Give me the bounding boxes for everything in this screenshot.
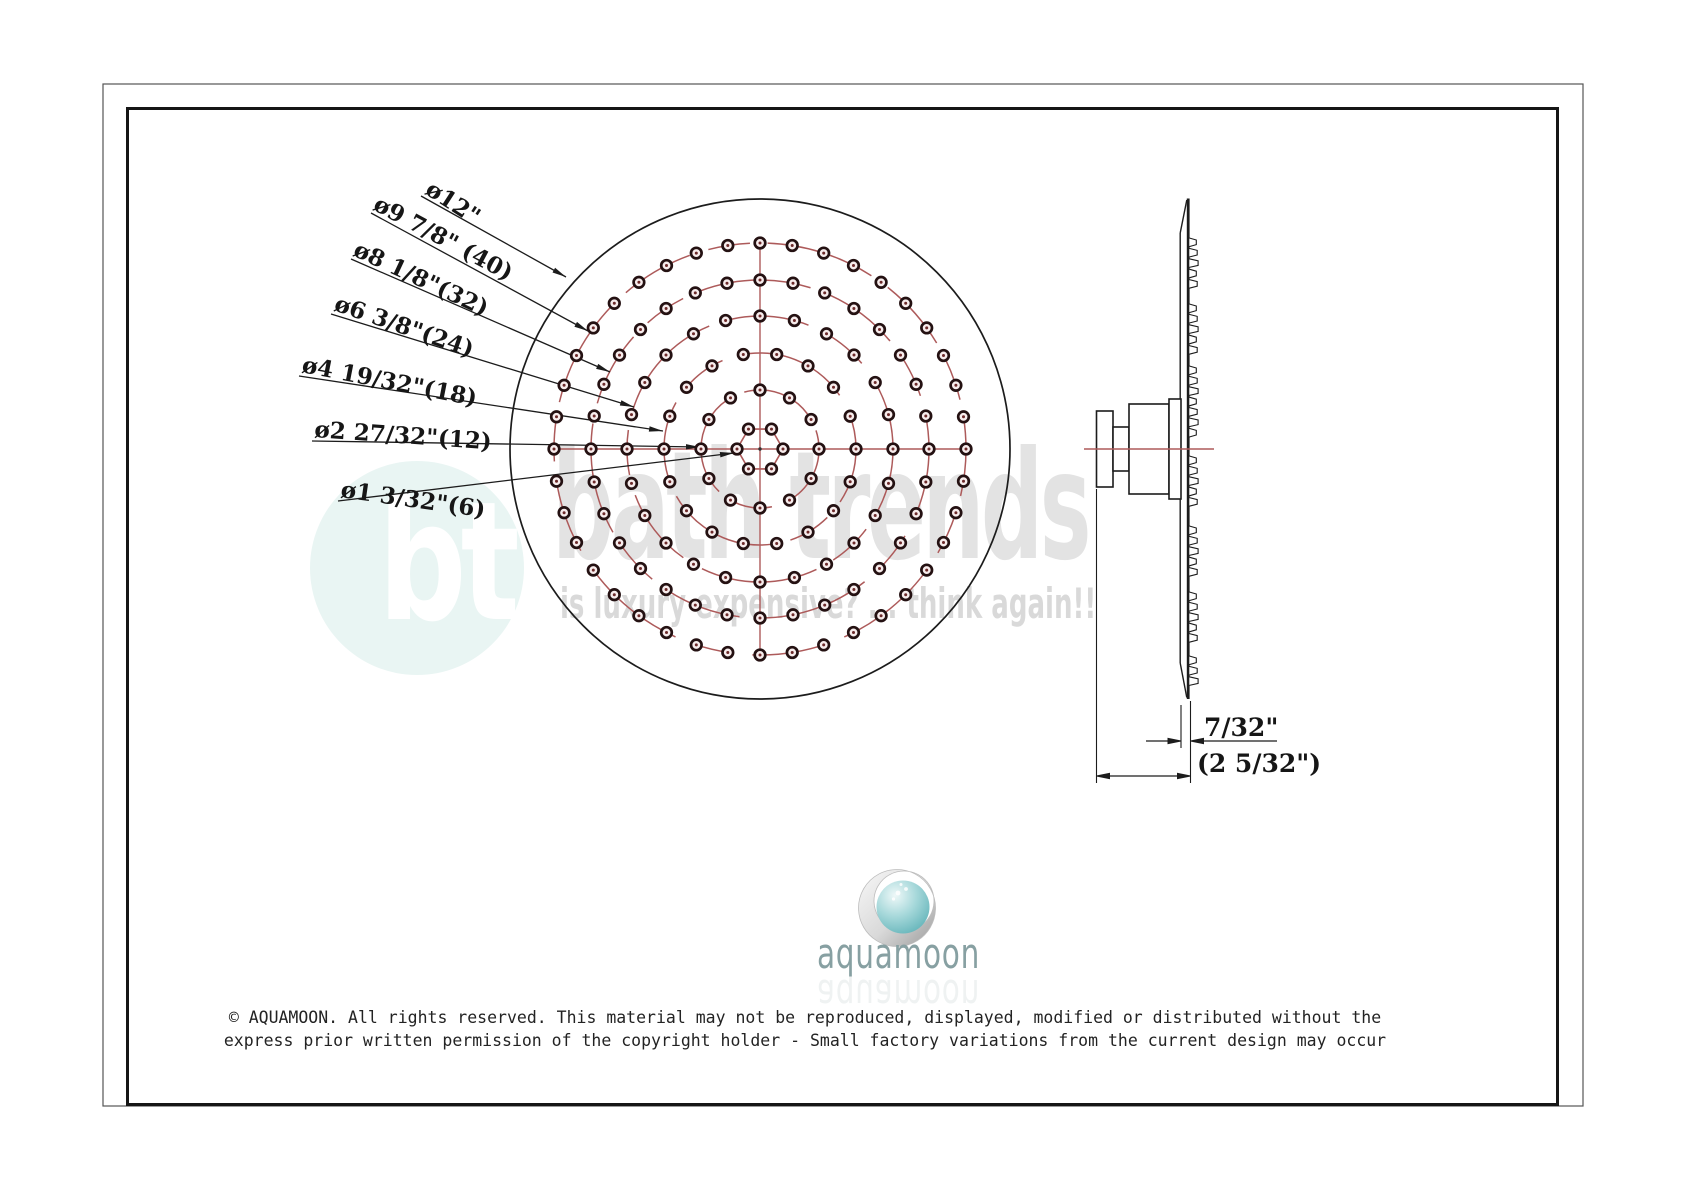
nozzle-center xyxy=(618,541,621,544)
extension-lines xyxy=(1097,489,1191,783)
nozzle-center xyxy=(825,563,828,566)
plate-top-chamfer xyxy=(1180,200,1187,233)
nozzle-center xyxy=(592,326,595,329)
nozzle-center xyxy=(726,244,729,247)
nozzle-center xyxy=(878,567,881,570)
tooth xyxy=(1189,677,1198,686)
nozzle-center xyxy=(668,415,671,418)
nozzle-center xyxy=(665,307,668,310)
dim-arrowhead-icon xyxy=(1178,773,1191,778)
nozzle-center xyxy=(915,383,918,386)
tooth xyxy=(1189,259,1198,268)
tooth xyxy=(1189,656,1196,665)
callout-arrowhead-icon xyxy=(574,322,588,331)
nozzle-center xyxy=(954,511,957,514)
dim-arrowhead-icon xyxy=(1097,773,1110,778)
nozzle-center xyxy=(637,614,640,617)
nozzle-center xyxy=(874,514,877,517)
tooth xyxy=(1189,408,1197,417)
nozzle-center xyxy=(899,541,902,544)
nozzle-center xyxy=(770,428,773,431)
copyright-notice: © AQUAMOON. All rights reserved. This ma… xyxy=(150,1006,1460,1052)
nozzle-center xyxy=(726,613,729,616)
tooth xyxy=(1189,238,1196,247)
nozzle-center xyxy=(962,480,965,483)
tooth xyxy=(1189,613,1198,622)
nozzle-center xyxy=(810,477,813,480)
nozzle-center xyxy=(724,319,727,322)
tooth xyxy=(1189,418,1198,427)
tooth xyxy=(1189,325,1198,334)
tooth xyxy=(1189,304,1196,313)
nozzle-center xyxy=(782,448,785,451)
nozzle-center xyxy=(775,542,778,545)
callout-ring-12: ø2 27/32"(12) xyxy=(314,416,493,455)
side-view xyxy=(1084,199,1277,784)
nozzle-center xyxy=(853,354,856,357)
nozzle-center xyxy=(618,354,621,357)
nozzle-center xyxy=(880,614,883,617)
nozzle-center xyxy=(643,514,646,517)
nozzle-center xyxy=(759,315,762,318)
nozzle-center xyxy=(832,509,835,512)
nozzle-center xyxy=(759,654,762,657)
nozzle-center xyxy=(613,593,616,596)
nozzle-center xyxy=(759,617,762,620)
nozzle-center xyxy=(685,509,688,512)
nozzle-center xyxy=(942,354,945,357)
nozzle-center xyxy=(899,354,902,357)
nozzle-center xyxy=(822,643,825,646)
tooth xyxy=(1189,666,1197,675)
nozzle-center xyxy=(915,512,918,515)
callout-arrowhead-icon xyxy=(596,364,610,372)
dimension-label-thickness: 7/32" xyxy=(1204,713,1278,742)
nozzle-center xyxy=(665,631,668,634)
nozzle-center xyxy=(668,480,671,483)
callout-ring-6: ø1 3/32"(6) xyxy=(339,476,487,523)
nozzle-center xyxy=(807,364,810,367)
nozzle-center xyxy=(602,512,605,515)
nozzle-center xyxy=(965,448,968,451)
nozzle-center xyxy=(729,499,732,502)
nozzle-center xyxy=(563,384,566,387)
nozzle-center xyxy=(823,291,826,294)
nozzle-center xyxy=(810,418,813,421)
nozzle-center xyxy=(852,588,855,591)
nozzle-center xyxy=(626,448,629,451)
tooth xyxy=(1189,376,1197,385)
nozzle-center xyxy=(942,541,945,544)
nozzle-center xyxy=(759,389,762,392)
nozzle-center xyxy=(849,415,852,418)
plate-bottom-chamfer xyxy=(1180,663,1187,698)
nozzle-center xyxy=(665,588,668,591)
nozzle-center xyxy=(928,448,931,451)
tooth xyxy=(1189,248,1197,257)
nozzle-center xyxy=(590,448,593,451)
tooth xyxy=(1189,592,1196,601)
callout-arrowhead-icon xyxy=(649,426,663,431)
nozzle-center xyxy=(793,576,796,579)
nozzle-center xyxy=(924,415,927,418)
nozzle-center xyxy=(555,415,558,418)
nozzle-center xyxy=(887,482,890,485)
tooth xyxy=(1189,547,1198,556)
nozzle-center xyxy=(592,569,595,572)
nozzle-center xyxy=(792,613,795,616)
tooth xyxy=(1189,557,1196,566)
nozzle-center xyxy=(707,477,710,480)
nozzle-center xyxy=(759,279,762,282)
nozzle-center xyxy=(643,381,646,384)
nozzle-center xyxy=(825,332,828,335)
tooth xyxy=(1189,456,1196,465)
nozzle-center xyxy=(724,576,727,579)
nozzle-center xyxy=(852,307,855,310)
dimension-label-depth: (2 5/32") xyxy=(1197,749,1321,778)
nozzle-center xyxy=(726,282,729,285)
nozzle-center xyxy=(637,281,640,284)
nozzle-center xyxy=(878,328,881,331)
nozzle-center xyxy=(759,581,762,584)
nozzle-center xyxy=(692,563,695,566)
nozzle-center xyxy=(892,448,895,451)
tooth xyxy=(1189,623,1196,632)
nozzle-center xyxy=(736,448,739,451)
dim-arrowhead-icon xyxy=(1168,738,1181,743)
center-point xyxy=(758,447,761,450)
nozzle-center xyxy=(904,593,907,596)
tooth xyxy=(1189,487,1196,496)
nozzle-center xyxy=(747,467,750,470)
copyright-line-2: express prior written permission of the … xyxy=(150,1029,1460,1052)
nozzle-center xyxy=(924,481,927,484)
nozzle-center xyxy=(694,604,697,607)
nozzle-center xyxy=(807,531,810,534)
nozzle-center xyxy=(563,511,566,514)
nozzle-center xyxy=(770,467,773,470)
nozzle-center xyxy=(726,651,729,654)
callout-arrowhead-icon xyxy=(553,268,567,277)
tooth xyxy=(1189,498,1197,507)
nozzle-center xyxy=(685,386,688,389)
tooth xyxy=(1189,536,1197,545)
nozzle-center xyxy=(695,252,698,255)
nozzle-center xyxy=(818,448,821,451)
nozzle-center xyxy=(602,383,605,386)
nozzle-center xyxy=(707,418,710,421)
nozzle-teeth xyxy=(1189,238,1198,685)
nozzle-center xyxy=(791,651,794,654)
nozzle-center xyxy=(788,396,791,399)
nozzle-center xyxy=(852,631,855,634)
water-sphere-icon xyxy=(877,881,930,934)
nozzle-center xyxy=(593,481,596,484)
nozzle-center xyxy=(832,386,835,389)
nozzle-center xyxy=(853,542,856,545)
nozzle-center xyxy=(874,381,877,384)
tooth xyxy=(1189,602,1197,611)
tooth xyxy=(1189,335,1196,344)
nozzle-center xyxy=(555,480,558,483)
nozzle-center xyxy=(925,326,928,329)
nozzle-center xyxy=(792,282,795,285)
nozzle-center xyxy=(880,281,883,284)
drawing-page: bt bath trends is luxury expensive? ... … xyxy=(0,0,1684,1190)
tooth xyxy=(1189,387,1198,396)
nozzle-center xyxy=(553,448,556,451)
aquamoon-logo: aquamoon aquamoon xyxy=(817,870,980,1020)
nozzle-center xyxy=(663,448,666,451)
nozzle-center xyxy=(852,264,855,267)
tooth xyxy=(1189,314,1197,323)
nozzle-center xyxy=(962,415,965,418)
nozzle-center xyxy=(711,531,714,534)
tooth xyxy=(1189,568,1197,577)
nozzle-center xyxy=(694,291,697,294)
nozzle-center xyxy=(665,264,668,267)
tooth xyxy=(1189,346,1197,355)
nozzle-center xyxy=(747,428,750,431)
tooth xyxy=(1189,269,1196,278)
nozzle-center xyxy=(849,480,852,483)
nozzle-center xyxy=(639,567,642,570)
copyright-line-1: © AQUAMOON. All rights reserved. This ma… xyxy=(150,1006,1460,1029)
nozzle-center xyxy=(575,541,578,544)
ring-callout-labels: ø12" ø9 7/8" (40) ø8 1/8"(32) ø6 3/8"(24… xyxy=(300,175,518,523)
nozzle-center xyxy=(729,396,732,399)
tooth xyxy=(1189,466,1197,475)
nozzle-center xyxy=(759,242,762,245)
nozzle-center xyxy=(791,244,794,247)
nozzle-center xyxy=(630,482,633,485)
nozzle-center xyxy=(793,319,796,322)
nozzle-center xyxy=(954,384,957,387)
nozzle-center xyxy=(823,604,826,607)
nozzle-center xyxy=(711,364,714,367)
tooth xyxy=(1189,280,1197,289)
nozzle-center xyxy=(665,354,668,357)
nozzle-center xyxy=(742,542,745,545)
nozzle-center xyxy=(788,499,791,502)
nozzle-center xyxy=(695,643,698,646)
tooth xyxy=(1189,397,1196,406)
nozzle-center xyxy=(593,415,596,418)
tooth xyxy=(1189,428,1196,437)
nozzle-center xyxy=(887,413,890,416)
tooth xyxy=(1189,366,1196,375)
nozzle-center xyxy=(613,302,616,305)
nozzle-center xyxy=(742,353,745,356)
nozzle-center xyxy=(822,252,825,255)
nozzle-center xyxy=(692,332,695,335)
nozzle-center xyxy=(630,413,633,416)
nozzle-center xyxy=(700,448,703,451)
nozzle-center xyxy=(639,328,642,331)
nozzle-center xyxy=(759,507,762,510)
callout-arrowhead-icon xyxy=(620,400,634,407)
dim-arrowhead-icon xyxy=(1191,738,1204,743)
tooth xyxy=(1189,526,1196,535)
tooth xyxy=(1189,634,1197,643)
tooth xyxy=(1189,477,1198,486)
nozzle-center xyxy=(775,353,778,356)
nozzle-center xyxy=(575,354,578,357)
nozzle-center xyxy=(665,542,668,545)
callout-ring-18: ø4 19/32"(18) xyxy=(300,351,479,411)
nozzle-center xyxy=(855,448,858,451)
nozzle-center xyxy=(904,302,907,305)
nozzle-center xyxy=(925,569,928,572)
